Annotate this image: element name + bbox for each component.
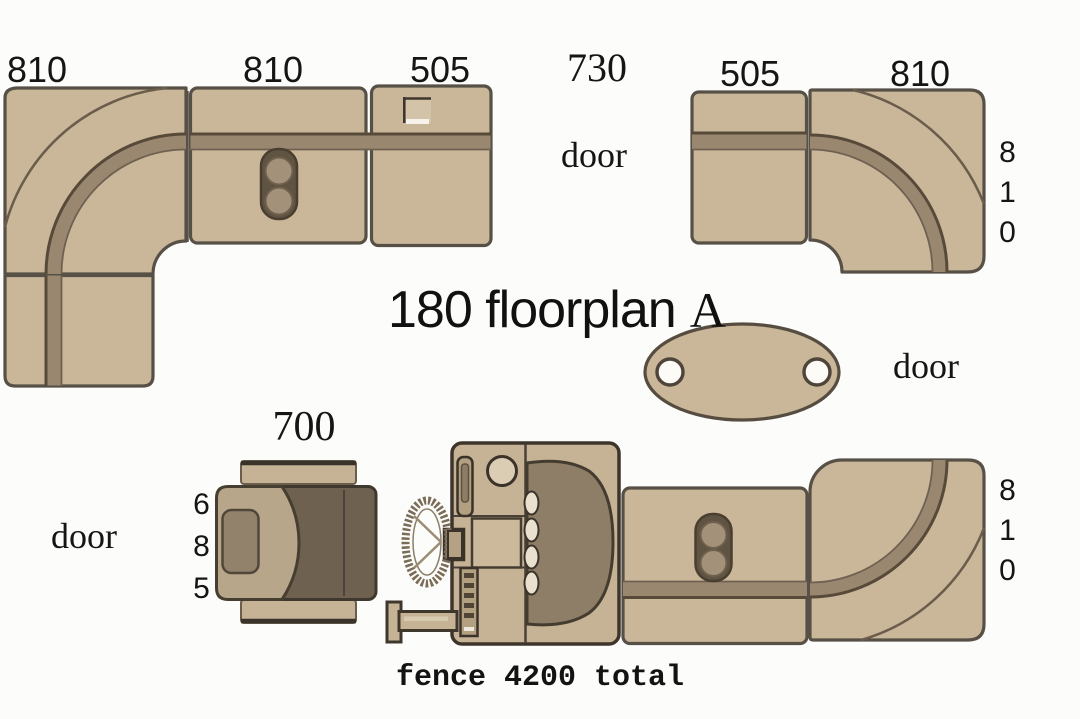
steering-column-box <box>472 519 521 568</box>
bottom-right-sofa-group <box>623 460 984 644</box>
band-fill <box>191 134 491 149</box>
dim-helm-seat-depth: 685 <box>186 488 216 614</box>
door-label-top: door <box>561 137 627 173</box>
dim-left-corner-width: 810 <box>7 52 67 88</box>
right-sofa-short-section <box>692 92 807 243</box>
left-sofa-short-section <box>372 86 492 246</box>
dim-left-short-width: 505 <box>410 52 470 88</box>
band-fill <box>692 133 807 149</box>
left-sofa-group <box>5 86 491 386</box>
top-right-sofa-group <box>692 90 984 272</box>
cupholder-hole <box>266 158 293 185</box>
title-variant: A <box>690 282 726 338</box>
captain-chair <box>217 461 377 623</box>
table-cup-hole <box>804 359 830 385</box>
console-gauge <box>488 457 517 486</box>
title-text: 180 floorplan <box>388 281 676 339</box>
left-sofa-cupholder <box>261 149 297 219</box>
band-vertical-fill <box>46 276 62 386</box>
page-title: 180 floorplanA <box>388 284 726 336</box>
door-label-left: door <box>51 518 117 554</box>
dim-left-straight-width: 810 <box>243 52 303 88</box>
chair-lumbar-cushion <box>223 510 259 573</box>
dim-bottom-right-corner-height: 810 <box>992 474 1022 594</box>
chair-armrest-bottom <box>241 600 356 623</box>
dim-right-corner-height: 810 <box>992 136 1022 256</box>
cupholder-hole <box>701 550 727 576</box>
left-sofa-gate-notch <box>403 97 431 124</box>
cupholder-hole <box>701 522 727 548</box>
floorplan-canvas: 810 810 505 730 505 810 door door door 8… <box>0 0 1080 719</box>
fence-total-caption: fence 4200 total <box>396 663 684 693</box>
console-step-bracket <box>387 602 457 642</box>
table-cup-hole <box>657 359 683 385</box>
notch-highlight <box>406 119 429 124</box>
dim-right-short-width: 505 <box>720 56 780 92</box>
bottom-sofa-cupholder <box>696 514 732 581</box>
door-label-right: door <box>893 348 959 384</box>
chair-armrest-top <box>241 461 356 484</box>
console-windshield <box>527 461 613 625</box>
console-button-strip <box>461 568 478 636</box>
dim-door-gap-width: 730 <box>567 48 627 88</box>
dim-helm-seat-width: 700 <box>273 406 336 448</box>
cupholder-hole <box>266 188 293 215</box>
helm-console <box>387 443 619 644</box>
dim-right-corner-width: 810 <box>890 56 950 92</box>
band-fill <box>623 582 807 598</box>
left-sofa-lower-section <box>5 276 153 387</box>
console-slot-inner <box>462 464 469 502</box>
